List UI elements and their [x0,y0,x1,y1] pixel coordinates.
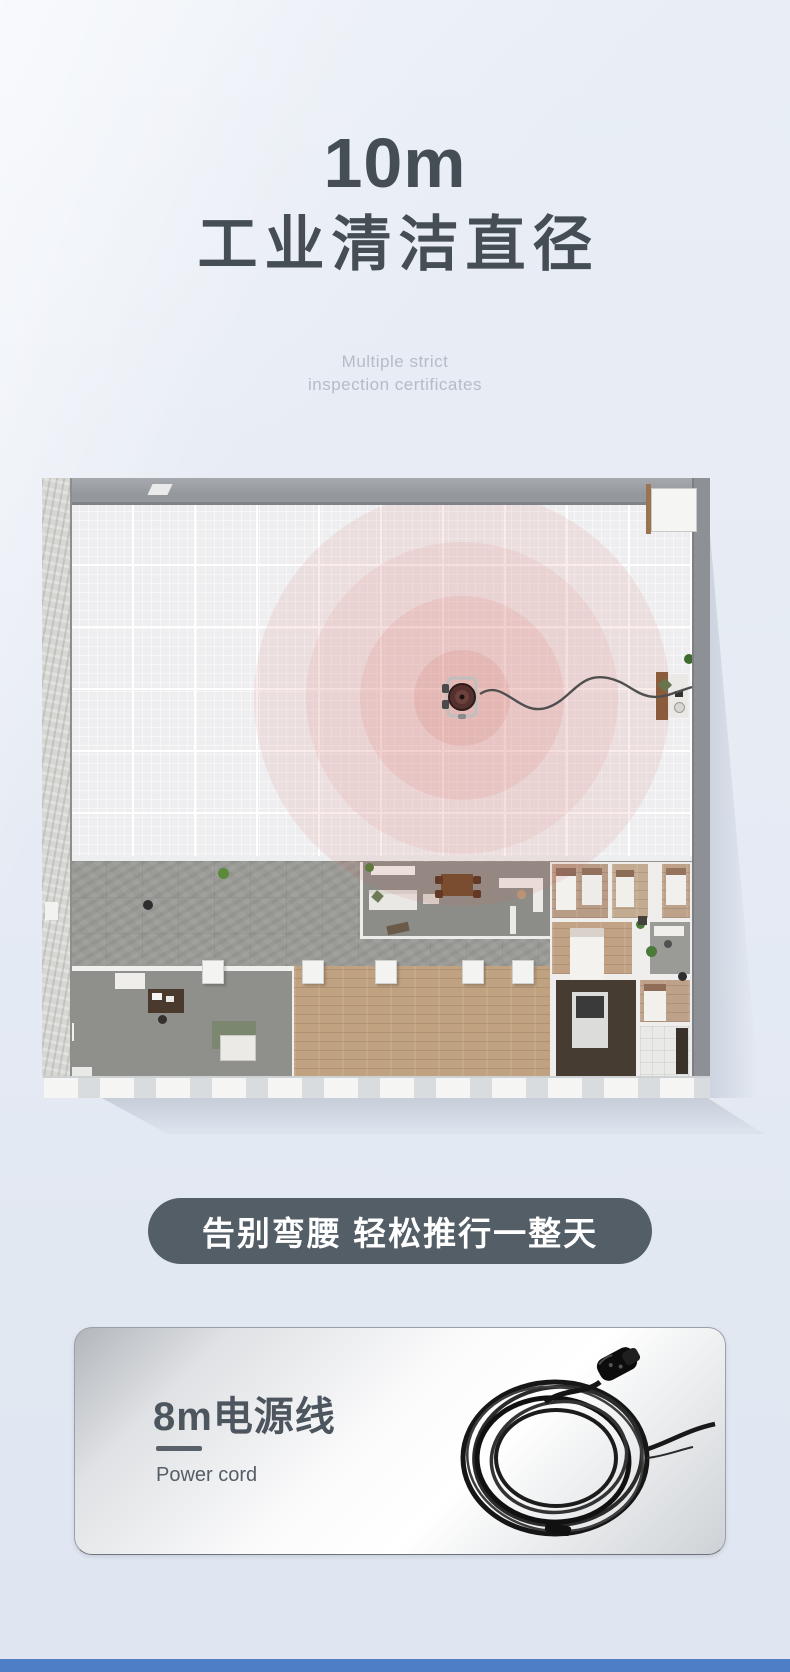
floor-plan [42,478,710,1098]
hero-title: 工业清洁直径 [0,210,790,280]
next-section-strip [0,1659,790,1672]
slogan-banner: 告别弯腰 轻松推行一整天 [148,1198,652,1264]
hero-subtitle: Multiple strict inspection certificates [0,350,790,396]
divider-dash [156,1446,202,1451]
feature-card-subtitle: Power cord [156,1464,257,1487]
cleaning-machine-icon [438,674,486,722]
power-plug-icon [594,1342,644,1384]
power-cord-image [395,1330,725,1552]
hero-subtitle-line2: inspection certificates [308,375,482,394]
product-page-section: 10m 工业清洁直径 Multiple strict inspection ce… [0,0,790,1672]
hero-subtitle-line1: Multiple strict [342,352,449,371]
machine-power-cord-line [42,478,710,1098]
hero-value: 10m [0,126,790,200]
floor-plan-shadow-bottom [100,1097,764,1134]
feature-card-title: 8m电源线 [153,1384,336,1442]
feature-card: 8m电源线 Power cord [74,1327,726,1555]
floor-plan-shadow-right [708,512,760,1098]
